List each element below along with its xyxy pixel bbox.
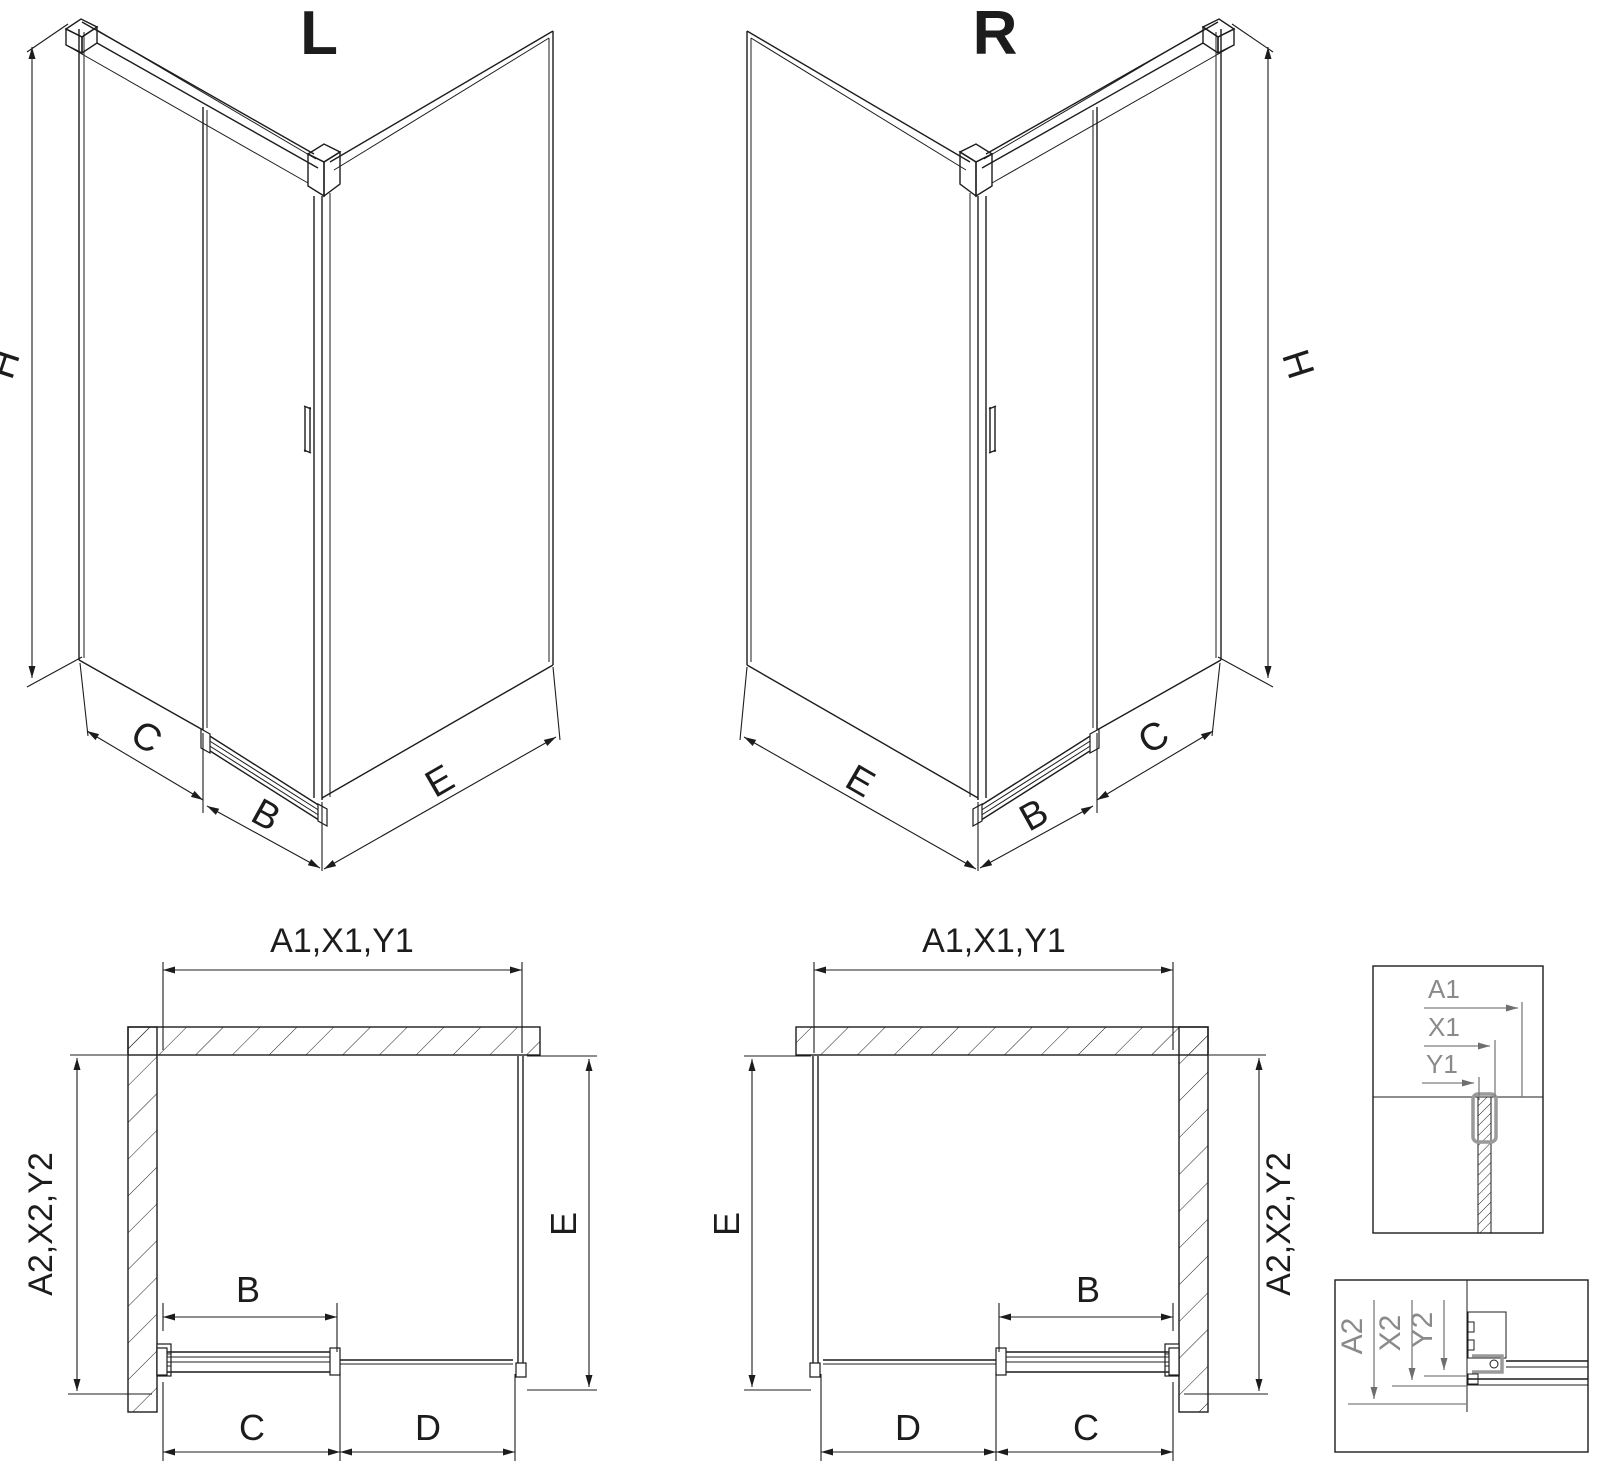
plan-view-right: A1,X1,Y1 A2,X2,Y2 E B D C: [706, 922, 1298, 1461]
dim-label-side-panel-left: E: [419, 757, 462, 806]
detail-label-x2: X2: [1374, 1315, 1407, 1352]
detail-depth-reference: A2 X2 Y2: [1335, 1280, 1588, 1452]
detail-label-a2: A2: [1336, 1318, 1369, 1355]
detail-label-y2: Y2: [1406, 1312, 1439, 1349]
dim-label-plan-right-width: A1,X1,Y1: [922, 922, 1066, 960]
dim-label-plan-right-seg2: C: [1073, 1407, 1099, 1448]
dim-label-height-right: H: [1273, 345, 1321, 384]
iso-view-left: L: [0, 0, 560, 871]
detail-label-y1: Y1: [1426, 1049, 1458, 1079]
dim-label-plan-left-seg1: C: [239, 1407, 265, 1448]
plan-view-left: A1,X1,Y1 A2,X2,Y2 E B C D: [22, 922, 597, 1461]
variant-label-left: L: [300, 0, 338, 68]
detail-label-x1: X1: [1428, 1012, 1460, 1042]
dim-label-plan-right-seg1: D: [895, 1407, 921, 1448]
dim-label-plan-left-door: B: [236, 1269, 260, 1310]
dim-label-plan-left-seg2: D: [415, 1407, 441, 1448]
dim-label-plan-left-side: E: [543, 1212, 584, 1236]
technical-drawing-page: L: [0, 0, 1600, 1474]
detail-label-a1: A1: [1428, 974, 1460, 1004]
dim-label-plan-left-width: A1,X1,Y1: [270, 922, 414, 960]
shower-enclosure-diagram: L: [0, 0, 1600, 1474]
dim-label-plan-left-depth: A2,X2,Y2: [22, 1152, 60, 1296]
dim-label-side-panel-right: E: [839, 757, 882, 806]
dim-label-back-segment-right: C: [1131, 713, 1176, 763]
dim-label-plan-right-door: B: [1076, 1269, 1100, 1310]
dim-label-plan-right-depth: A2,X2,Y2: [1260, 1152, 1298, 1296]
dim-label-height-left: H: [0, 345, 29, 384]
dim-label-back-segment-left: C: [124, 713, 169, 763]
variant-label-right: R: [973, 0, 1018, 68]
detail-width-reference: A1 X1 Y1: [1373, 966, 1543, 1233]
iso-view-right: R: [740, 0, 1322, 871]
dim-label-door-left: B: [245, 791, 288, 840]
dim-label-door-right: B: [1013, 791, 1056, 840]
dim-label-plan-right-side: E: [706, 1212, 747, 1236]
